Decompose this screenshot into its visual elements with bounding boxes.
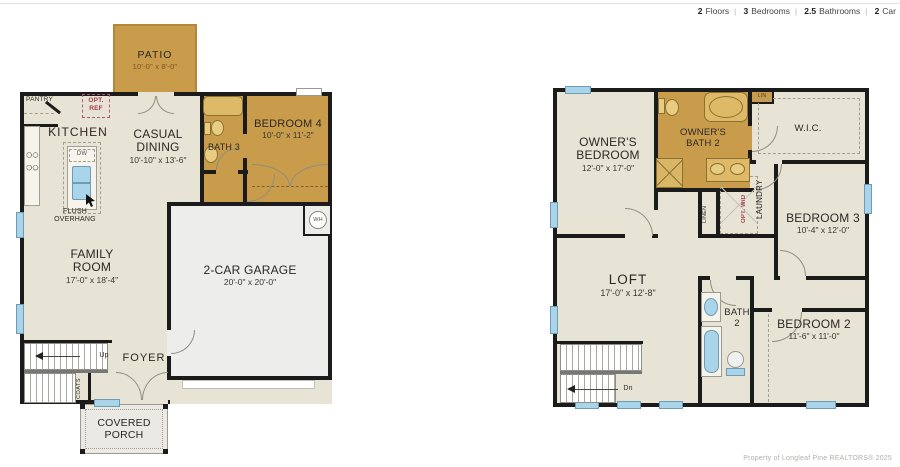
patio-label: PATIO: [113, 50, 197, 62]
bedroom4-label: BEDROOM 4 10'-0" x 11'-2": [246, 118, 330, 141]
meta-label: Bathrooms: [819, 6, 860, 16]
lin-label: LIN: [752, 94, 772, 100]
window: [617, 401, 641, 409]
owners-bedroom-label: OWNER'S BEDROOM 12'-0" x 17'-0": [560, 136, 656, 173]
window: [659, 401, 683, 409]
bathtub-basin: [709, 96, 743, 118]
copyright-text: Property of Longleaf Pine REALTORS® 2025: [743, 455, 892, 462]
garage-label: 2-CAR GARAGE 20'-0" x 20'-0": [200, 264, 300, 288]
room-name: LOFT: [586, 272, 670, 287]
meta-value: 2: [875, 6, 880, 16]
room-name: 2-CAR GARAGE: [200, 264, 300, 277]
meta-value: 2.5: [804, 6, 816, 16]
window: [296, 88, 322, 96]
window: [94, 399, 120, 407]
porch-post: [163, 449, 168, 454]
room-name: CASUAL DINING: [116, 128, 200, 155]
bedroom3-label: BEDROOM 3 10'-4" x 12'-0": [778, 212, 868, 236]
stairs-direction-line: [42, 356, 80, 357]
opt-wd-label: OPT. W/D: [741, 186, 752, 232]
window: [16, 212, 24, 238]
wall-segment: [750, 276, 754, 407]
window: [565, 86, 591, 94]
wic-label: W.I.C.: [778, 124, 838, 135]
pantry-shelf-line: [24, 113, 54, 114]
family-room-label: FAMILY ROOM 17'-0" x 18'-4": [50, 248, 134, 285]
porch-post: [80, 404, 85, 409]
patio-dims: 10'-0" x 8'-0": [113, 63, 197, 71]
room-name: BEDROOM 3: [778, 212, 868, 225]
covered-porch-label: COVERED PORCH: [86, 418, 162, 442]
toilet-icon: [204, 122, 211, 135]
opt-ref-label: OPT. REF: [82, 97, 110, 114]
door-gap: [780, 276, 806, 280]
meta-label: Bedrooms: [751, 6, 790, 16]
stairs-lower: [24, 373, 76, 403]
room-name: BEDROOM 2: [762, 318, 866, 331]
room-dims: 17'-0" x 12'-8": [586, 288, 670, 298]
loft-label: LOFT 17'-0" x 12'-8": [586, 272, 670, 298]
door-gap: [216, 170, 238, 174]
mouse-cursor: [86, 194, 96, 208]
room-name: FAMILY ROOM: [50, 248, 134, 275]
window: [864, 184, 872, 214]
wall-segment: [20, 92, 332, 96]
window: [16, 304, 24, 334]
room-dims: 12'-0" x 17'-0": [560, 164, 656, 174]
shower-icon: [656, 158, 683, 188]
stove-icon: [25, 148, 39, 176]
foyer-label: FOYER: [118, 352, 170, 364]
casual-dining-label: CASUAL DINING 10'-10" x 13'-6": [116, 128, 200, 165]
flush-overhang-label: FLUSH OVERHANG: [42, 208, 108, 224]
bathtub-icon: [203, 96, 243, 116]
wall-segment: [553, 234, 629, 238]
window: [550, 306, 558, 334]
room-dims: 10'-0" x 11'-2": [246, 131, 330, 141]
sink-icon: [704, 298, 718, 316]
linen-label: LINEN: [702, 196, 716, 232]
meta-separator: |: [795, 7, 797, 16]
window: [806, 401, 836, 409]
water-heater-label: WH: [309, 217, 327, 223]
page-top-divider: [0, 3, 900, 4]
room-dims: 10'-10" x 13'-6": [116, 156, 200, 166]
closet-rod-line: [252, 186, 328, 187]
room-dims: 17'-0" x 18'-4": [50, 276, 134, 286]
stairs-up-label: Up: [96, 352, 112, 360]
toilet-icon: [211, 120, 224, 136]
wall-segment: [865, 88, 869, 407]
meta-label: Floors: [706, 6, 730, 16]
room-dims: 20'-0" x 20'-0": [200, 278, 300, 288]
bathtub-basin: [704, 330, 719, 373]
stairs-down: [560, 344, 642, 371]
wall-segment: [553, 88, 557, 407]
stairs-arrow-icon: [567, 385, 575, 393]
kitchen-label: KITCHEN: [38, 126, 118, 139]
bath3-label: BATH 3: [202, 142, 246, 152]
toilet-icon: [658, 98, 665, 114]
floorplan-page: 2Floors| 3Bedrooms| 2.5Bathrooms| 2Car: [0, 0, 900, 467]
toilet-icon: [665, 99, 679, 116]
sink-icon: [710, 163, 725, 175]
porch-post: [80, 449, 85, 454]
garage-door: [182, 380, 315, 389]
meta-label: Car: [882, 6, 896, 16]
opt-washer-dryer-box: [720, 176, 758, 234]
stairs-down-label: Dn: [619, 385, 637, 393]
stairs-direction-line: [574, 389, 618, 390]
room-name: BEDROOM 4: [246, 118, 330, 130]
coats-label: COATS: [76, 375, 88, 402]
sink-icon: [730, 163, 745, 175]
room-dims: 11'-6" x 11'-0": [762, 332, 866, 342]
bedroom4-hall-area: [204, 172, 245, 204]
laundry-label: LAUNDRY: [756, 168, 772, 230]
room-dims: 10'-4" x 12'-0": [778, 226, 868, 236]
meta-separator: |: [865, 7, 867, 16]
bedroom2-label: BEDROOM 2 11'-6" x 11'-0": [762, 318, 866, 342]
porch-post: [163, 404, 168, 409]
meta-value: 2: [698, 6, 703, 16]
door-gap: [116, 400, 168, 404]
wall-segment: [750, 308, 869, 312]
pantry-label: PANTRY: [21, 96, 58, 103]
dishwasher-label: DW: [69, 151, 95, 158]
meta-separator: |: [734, 7, 736, 16]
room-name: OWNER'S BEDROOM: [560, 136, 656, 163]
bath2-label: BATH 2: [722, 308, 752, 329]
toilet-icon: [727, 351, 744, 368]
stairs-arrow-icon: [35, 352, 43, 360]
wall-segment: [167, 376, 332, 380]
owners-bath-label: OWNER'S BATH 2: [666, 128, 740, 149]
meta-value: 3: [743, 6, 748, 16]
listing-meta: 2Floors| 3Bedrooms| 2.5Bathrooms| 2Car: [698, 6, 896, 16]
wall-segment: [200, 170, 204, 206]
toilet-icon: [726, 368, 745, 376]
wall-segment: [88, 373, 91, 404]
wall-segment: [698, 234, 778, 238]
window: [550, 202, 558, 228]
